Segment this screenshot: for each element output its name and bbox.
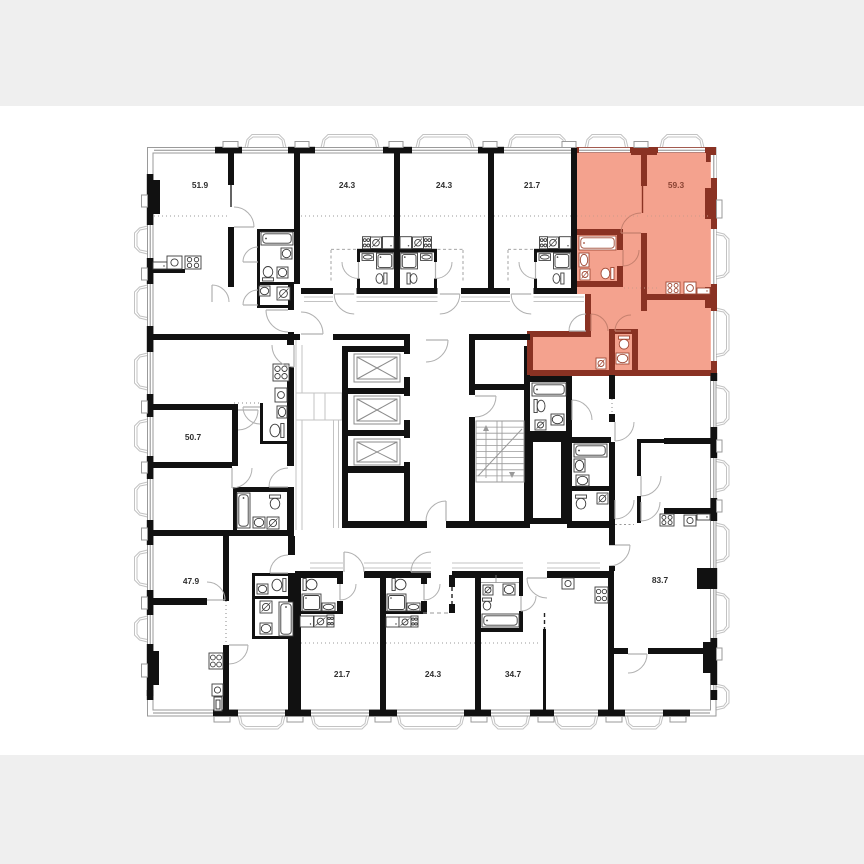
svg-text:21.7: 21.7: [524, 180, 541, 190]
svg-text:83.7: 83.7: [652, 575, 669, 585]
svg-text:50.7: 50.7: [185, 432, 202, 442]
svg-text:51.9: 51.9: [192, 180, 209, 190]
svg-text:24.3: 24.3: [339, 180, 356, 190]
svg-text:59.3: 59.3: [668, 180, 685, 190]
svg-text:24.3: 24.3: [425, 669, 442, 679]
svg-text:47.9: 47.9: [183, 576, 200, 586]
svg-text:34.7: 34.7: [505, 669, 522, 679]
svg-text:24.3: 24.3: [436, 180, 453, 190]
svg-text:21.7: 21.7: [334, 669, 351, 679]
